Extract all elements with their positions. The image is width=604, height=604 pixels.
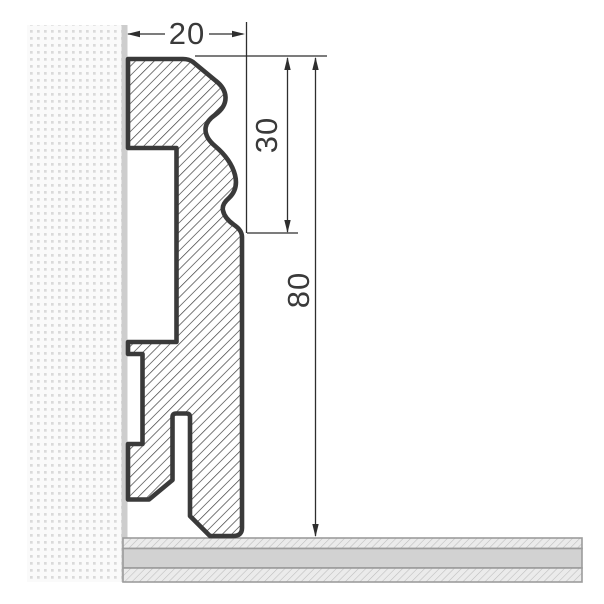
dimension-width-20: 20 [127,16,245,51]
dimension-width-label: 20 [169,16,205,51]
floor-top-layer [123,538,582,549]
dimension-upper-height-30: 30 [249,57,291,233]
floor-bottom-layer [123,568,582,582]
arrowhead-down-icon [312,524,318,537]
skirting-profile-drawing: 20 30 80 [0,0,604,604]
dimension-total-height-label: 80 [281,272,316,308]
arrowhead-up-icon [312,57,318,70]
skirting-profile-outline [128,59,242,536]
arrowhead-left-icon [127,31,140,37]
arrowhead-right-icon [232,31,245,37]
dimension-upper-height-label: 30 [249,117,284,153]
floor-layers [123,538,582,582]
drawing-canvas: 20 30 80 [0,0,604,604]
dimension-total-height-80: 80 [281,57,319,537]
wall-dotted-area [27,25,122,582]
arrowhead-up-icon [284,57,290,70]
floor-core-layer [123,549,582,569]
arrowhead-down-icon [284,220,290,233]
